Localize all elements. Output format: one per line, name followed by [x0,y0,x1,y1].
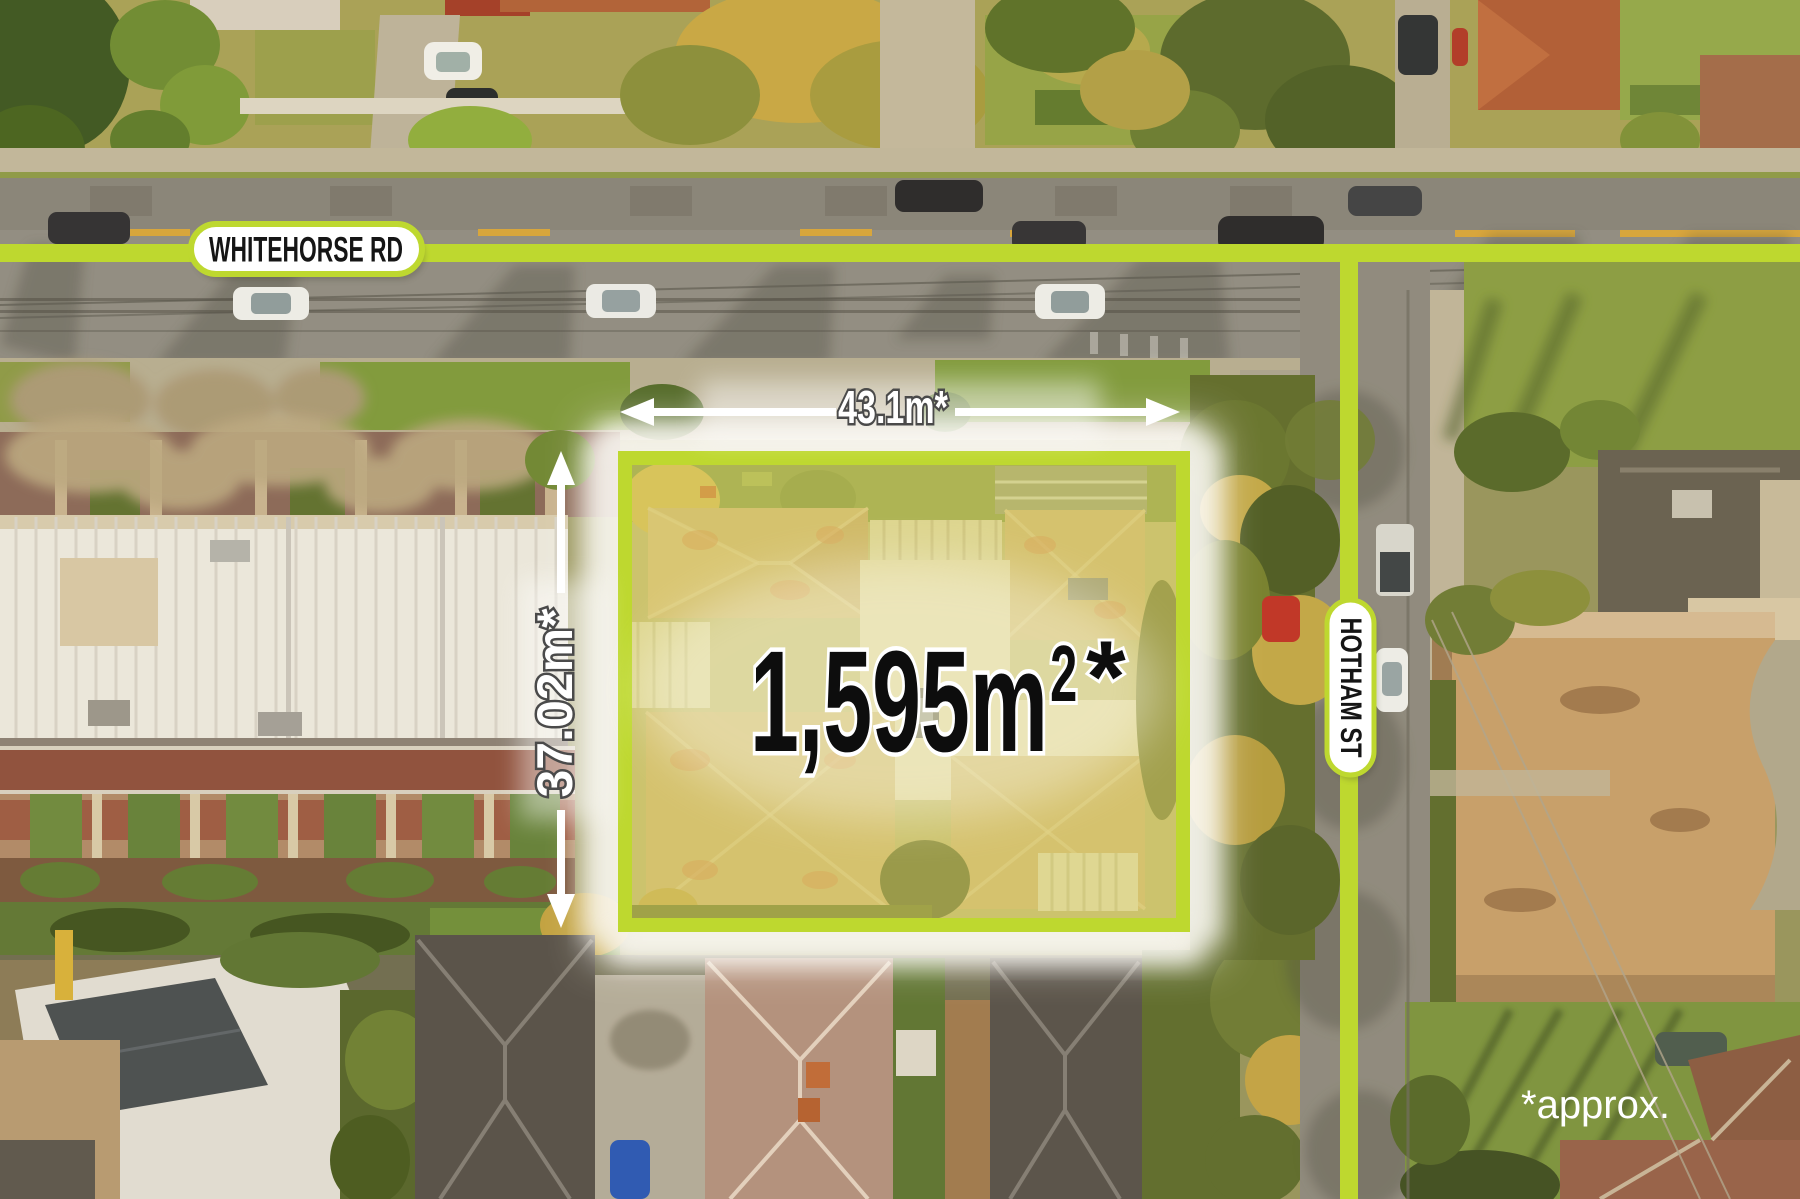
svg-text:HOTHAM ST: HOTHAM ST [1334,618,1367,758]
svg-text:2: 2 [1050,630,1077,719]
svg-text:WHITEHORSE RD: WHITEHORSE RD [209,231,403,270]
svg-text:37.02m*: 37.02m* [527,608,583,798]
svg-text:1,595m: 1,595m [750,622,1048,783]
svg-text:*: * [1086,620,1126,734]
svg-text:43.1m*: 43.1m* [838,381,948,433]
svg-text:*approx.: *approx. [1521,1083,1670,1127]
